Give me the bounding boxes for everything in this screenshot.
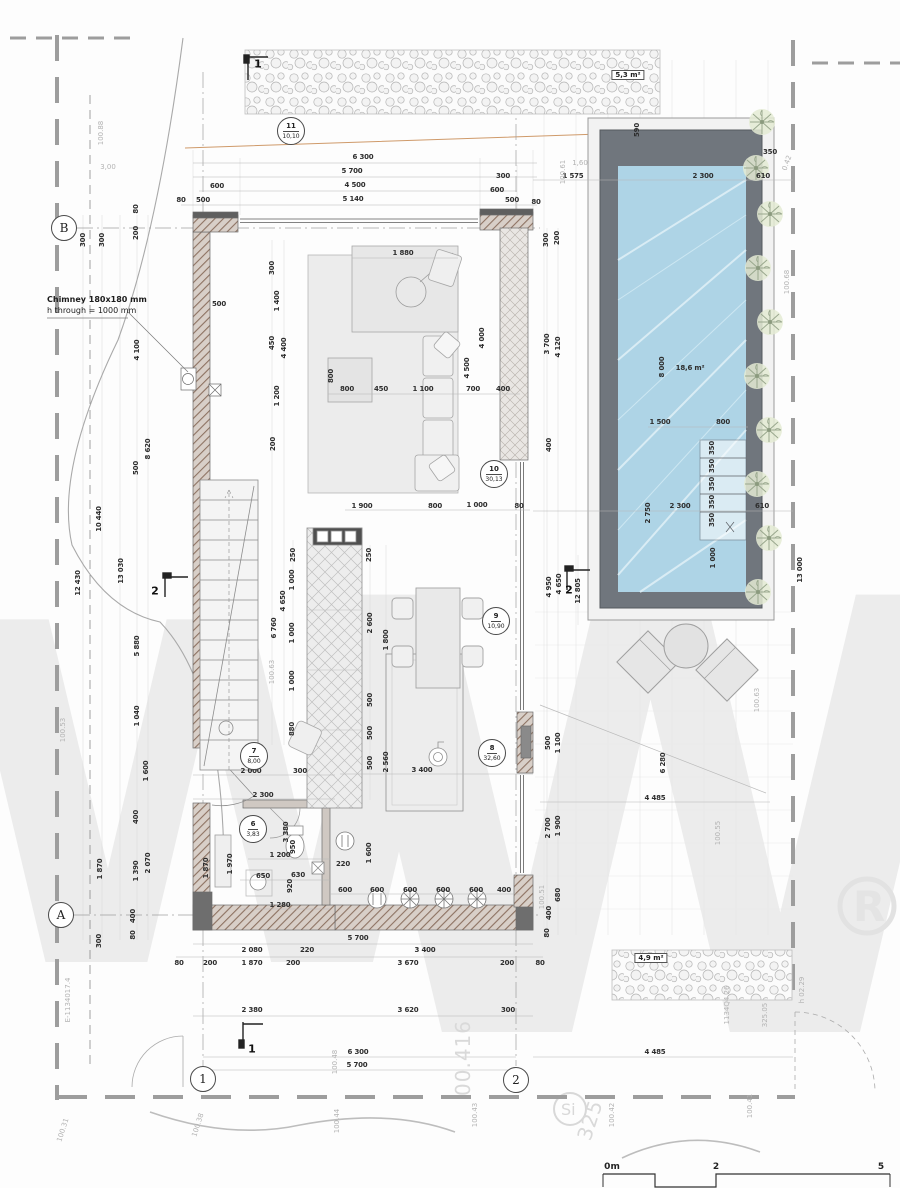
chimney-note-line2: h through = 1000 mm (47, 306, 147, 317)
plug-icon (368, 890, 386, 908)
dining-table (416, 588, 460, 688)
floor-plan-sheet: W W R Si (0, 0, 900, 1188)
kitchen-tall-units (307, 528, 362, 808)
coffee-table (328, 358, 372, 402)
svg-text:Si: Si (561, 1100, 576, 1119)
chimney-note-line1: Chimney 180x180 mm (47, 295, 147, 306)
floor-lamp-icon (396, 277, 426, 307)
scale-bar (603, 1174, 890, 1187)
terrace-table (664, 624, 708, 668)
staircase (200, 480, 258, 770)
plan-drawing: W W R Si (0, 0, 900, 1188)
svg-text:R: R (853, 882, 885, 931)
chimney-note: Chimney 180x180 mm h through = 1000 mm (47, 295, 147, 317)
stone-clad-wall (500, 228, 528, 460)
pool-steps (700, 440, 746, 540)
sink-icon (429, 748, 447, 766)
utensils-icon (336, 832, 354, 850)
